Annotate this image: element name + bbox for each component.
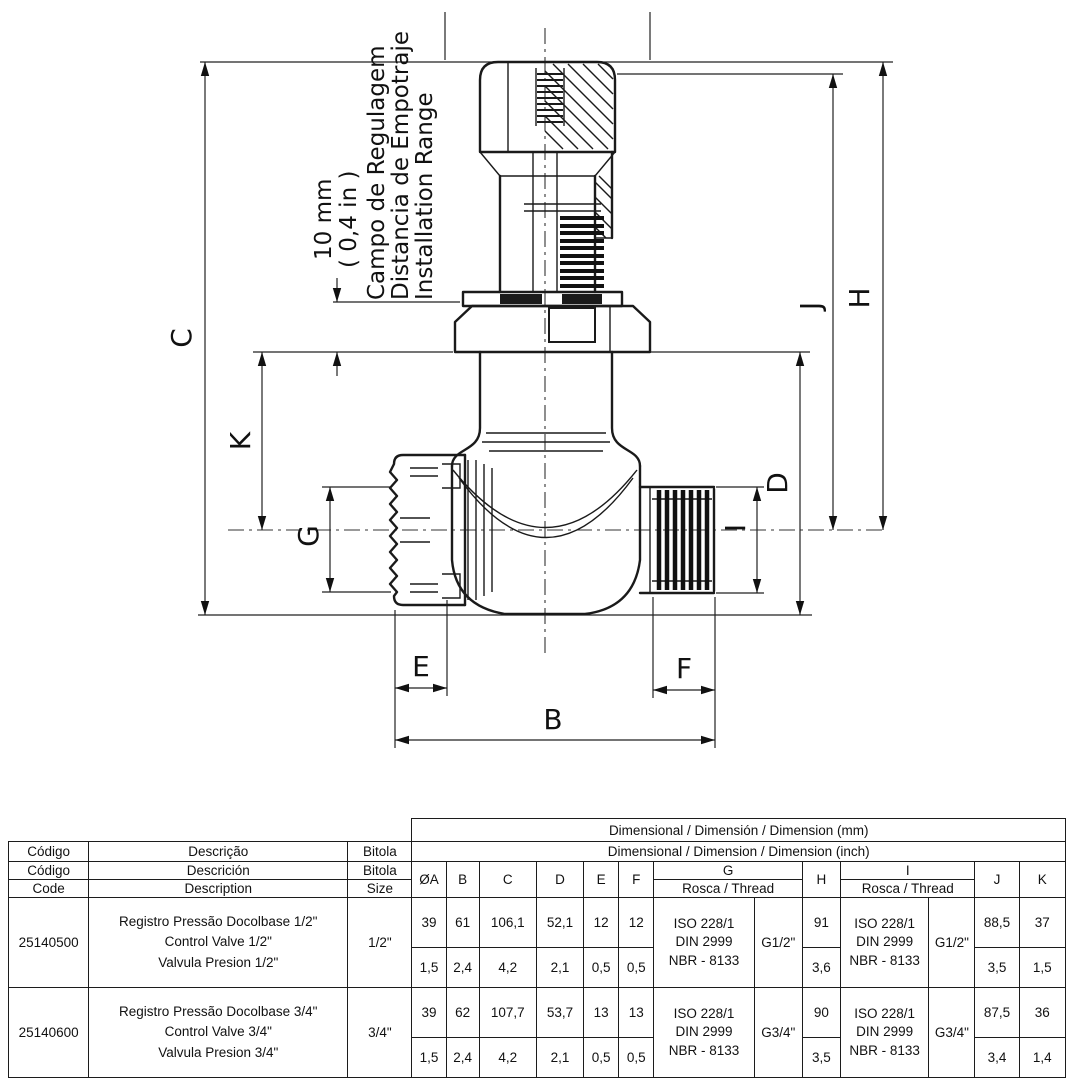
value-cell-c-in: 4,2 (479, 1038, 536, 1078)
value-cell-k-in: 1,4 (1019, 1038, 1065, 1078)
value-cell-j-in: 3,4 (975, 1038, 1019, 1078)
i-thread-subheader: Rosca / Thread (840, 880, 974, 898)
code-header-pt: Código (9, 842, 89, 862)
value-cell-c-mm: 106,1 (479, 898, 536, 948)
g-thread-subheader: Rosca / Thread (654, 880, 803, 898)
value-cell-oa-mm: 39 (412, 898, 446, 948)
range-label-en: Installation Range (412, 92, 438, 300)
value-cell-oa-in: 1,5 (412, 1038, 446, 1078)
size-header-en: Size (348, 880, 412, 898)
value-cell-d-mm: 53,7 (536, 988, 583, 1038)
col-header-h: H (802, 862, 840, 898)
col-header-j: J (975, 862, 1019, 898)
code-header-en: Code (9, 880, 89, 898)
dim-label-k: K (224, 431, 257, 450)
value-cell-h-mm: 91 (802, 898, 840, 948)
dimension-lines (201, 62, 887, 744)
value-cell-k-mm: 37 (1019, 898, 1065, 948)
value-cell-k-in: 1,5 (1019, 948, 1065, 988)
value-cell-f-in: 0,5 (619, 1038, 654, 1078)
description-header-pt: Descrição (89, 842, 348, 862)
inch-band-header: Dimensional / Dimension / Dimension (inc… (412, 842, 1066, 862)
value-cell-h-in: 3,6 (802, 948, 840, 988)
i-size-cell: G3/4" (929, 988, 975, 1078)
description-header-en: Description (89, 880, 348, 898)
i-thread-cell: ISO 228/1 DIN 2999 NBR - 8133 (840, 988, 928, 1078)
thread-standard: NBR - 8133 (656, 952, 751, 970)
range-label-es: Distancia de Empotraje (388, 31, 414, 300)
description-line: Control Valve 3/4" (91, 1022, 345, 1042)
value-cell-d-in: 2,1 (536, 1038, 583, 1078)
value-cell-e-in: 0,5 (584, 1038, 619, 1078)
range-value-inch: ( 0,4 in ) (336, 171, 362, 268)
description-line: Valvula Presion 3/4" (91, 1043, 345, 1063)
g-size-cell: G3/4" (754, 988, 802, 1078)
value-cell-h-in: 3,5 (802, 1038, 840, 1078)
value-cell-c-mm: 107,7 (479, 988, 536, 1038)
value-cell-j-in: 3,5 (975, 948, 1019, 988)
dim-label-f: F (676, 652, 692, 685)
dim-label-e: E (412, 650, 430, 683)
valve-outline (390, 62, 714, 614)
description-cell: Registro Pressão Docolbase 1/2" Control … (89, 898, 348, 988)
g-thread-cell: ISO 228/1 DIN 2999 NBR - 8133 (654, 898, 754, 988)
thread-standard: DIN 2999 (656, 933, 751, 951)
code-header-es: Código (9, 862, 89, 880)
dim-label-d: D (761, 472, 794, 494)
value-cell-d-mm: 52,1 (536, 898, 583, 948)
value-cell-e-in: 0,5 (584, 948, 619, 988)
bonnet-hatching (595, 176, 612, 238)
range-value-mm: 10 mm (311, 179, 337, 260)
description-line: Control Valve 1/2" (91, 932, 345, 952)
value-cell-b-mm: 62 (446, 988, 479, 1038)
thread-standard: ISO 228/1 (656, 915, 751, 933)
value-cell-oa-in: 1,5 (412, 948, 446, 988)
value-cell-c-in: 4,2 (479, 948, 536, 988)
description-header-es: Descrición (89, 862, 348, 880)
g-size-cell: G1/2" (754, 898, 802, 988)
description-line: Registro Pressão Docolbase 1/2" (91, 912, 345, 932)
range-label-pt: Campo de Regulagem (364, 45, 390, 300)
value-cell-f-in: 0,5 (619, 948, 654, 988)
col-header-d: D (536, 862, 583, 898)
value-cell-h-mm: 90 (802, 988, 840, 1038)
dimension-table: Dimensional / Dimensión / Dimension (mm)… (8, 818, 1066, 1078)
size-cell: 1/2" (348, 898, 412, 988)
col-header-oa: ØA (412, 862, 446, 898)
value-cell-k-mm: 36 (1019, 988, 1065, 1038)
col-header-g: G (654, 862, 803, 880)
i-thread-cell: ISO 228/1 DIN 2999 NBR - 8133 (840, 898, 928, 988)
size-cell: 3/4" (348, 988, 412, 1078)
col-header-c: C (479, 862, 536, 898)
installation-range-annotation: 10 mm ( 0,4 in ) Campo de Regulagem Dist… (311, 31, 438, 300)
description-line: Registro Pressão Docolbase 3/4" (91, 1002, 345, 1022)
catalog-page: C K G D I J H E F B 10 mm ( 0,4 in ) Cam… (0, 0, 1080, 1080)
thread-standard: NBR - 8133 (656, 1042, 751, 1060)
male-thread (659, 490, 707, 590)
value-cell-e-mm: 13 (584, 988, 619, 1038)
section-hatching (545, 64, 613, 149)
table-spacer (9, 819, 412, 842)
size-header-es: Bitola (348, 862, 412, 880)
value-cell-j-mm: 88,5 (975, 898, 1019, 948)
table-row: 25140600 Registro Pressão Docolbase 3/4"… (9, 988, 1066, 1038)
value-cell-f-mm: 12 (619, 898, 654, 948)
dim-label-h: H (843, 287, 876, 308)
value-cell-oa-mm: 39 (412, 988, 446, 1038)
dim-label-b: B (543, 703, 562, 736)
table-row: 25140500 Registro Pressão Docolbase 1/2"… (9, 898, 1066, 948)
thread-standard: DIN 2999 (843, 933, 926, 951)
col-header-e: E (584, 862, 619, 898)
value-cell-j-mm: 87,5 (975, 988, 1019, 1038)
thread-standard: DIN 2999 (656, 1023, 751, 1041)
thread-standard: NBR - 8133 (843, 952, 926, 970)
description-line: Valvula Presion 1/2" (91, 953, 345, 973)
value-cell-d-in: 2,1 (536, 948, 583, 988)
code-cell: 25140600 (9, 988, 89, 1078)
col-header-k: K (1019, 862, 1065, 898)
size-header-pt: Bitola (348, 842, 412, 862)
thread-standard: NBR - 8133 (843, 1042, 926, 1060)
dim-label-i: I (719, 524, 752, 532)
dim-label-g: G (292, 525, 325, 547)
spring (560, 218, 604, 286)
value-cell-e-mm: 12 (584, 898, 619, 948)
value-cell-b-mm: 61 (446, 898, 479, 948)
col-header-i: I (840, 862, 974, 880)
i-size-cell: G1/2" (929, 898, 975, 988)
thread-standard: ISO 228/1 (843, 915, 926, 933)
value-cell-b-in: 2,4 (446, 948, 479, 988)
dimension-labels: C K G D I J H E F B (165, 287, 876, 736)
valve-technical-drawing: C K G D I J H E F B 10 mm ( 0,4 in ) Cam… (0, 0, 1080, 812)
value-cell-f-mm: 13 (619, 988, 654, 1038)
col-header-b: B (446, 862, 479, 898)
g-thread-cell: ISO 228/1 DIN 2999 NBR - 8133 (654, 988, 754, 1078)
thread-standard: DIN 2999 (843, 1023, 926, 1041)
mm-band-header: Dimensional / Dimensión / Dimension (mm) (412, 819, 1066, 842)
thread-standard: ISO 228/1 (656, 1005, 751, 1023)
code-cell: 25140500 (9, 898, 89, 988)
value-cell-b-in: 2,4 (446, 1038, 479, 1078)
thread-standard: ISO 228/1 (843, 1005, 926, 1023)
dim-label-j: J (794, 302, 827, 312)
dim-label-c: C (165, 328, 198, 348)
col-header-f: F (619, 862, 654, 898)
description-cell: Registro Pressão Docolbase 3/4" Control … (89, 988, 348, 1078)
